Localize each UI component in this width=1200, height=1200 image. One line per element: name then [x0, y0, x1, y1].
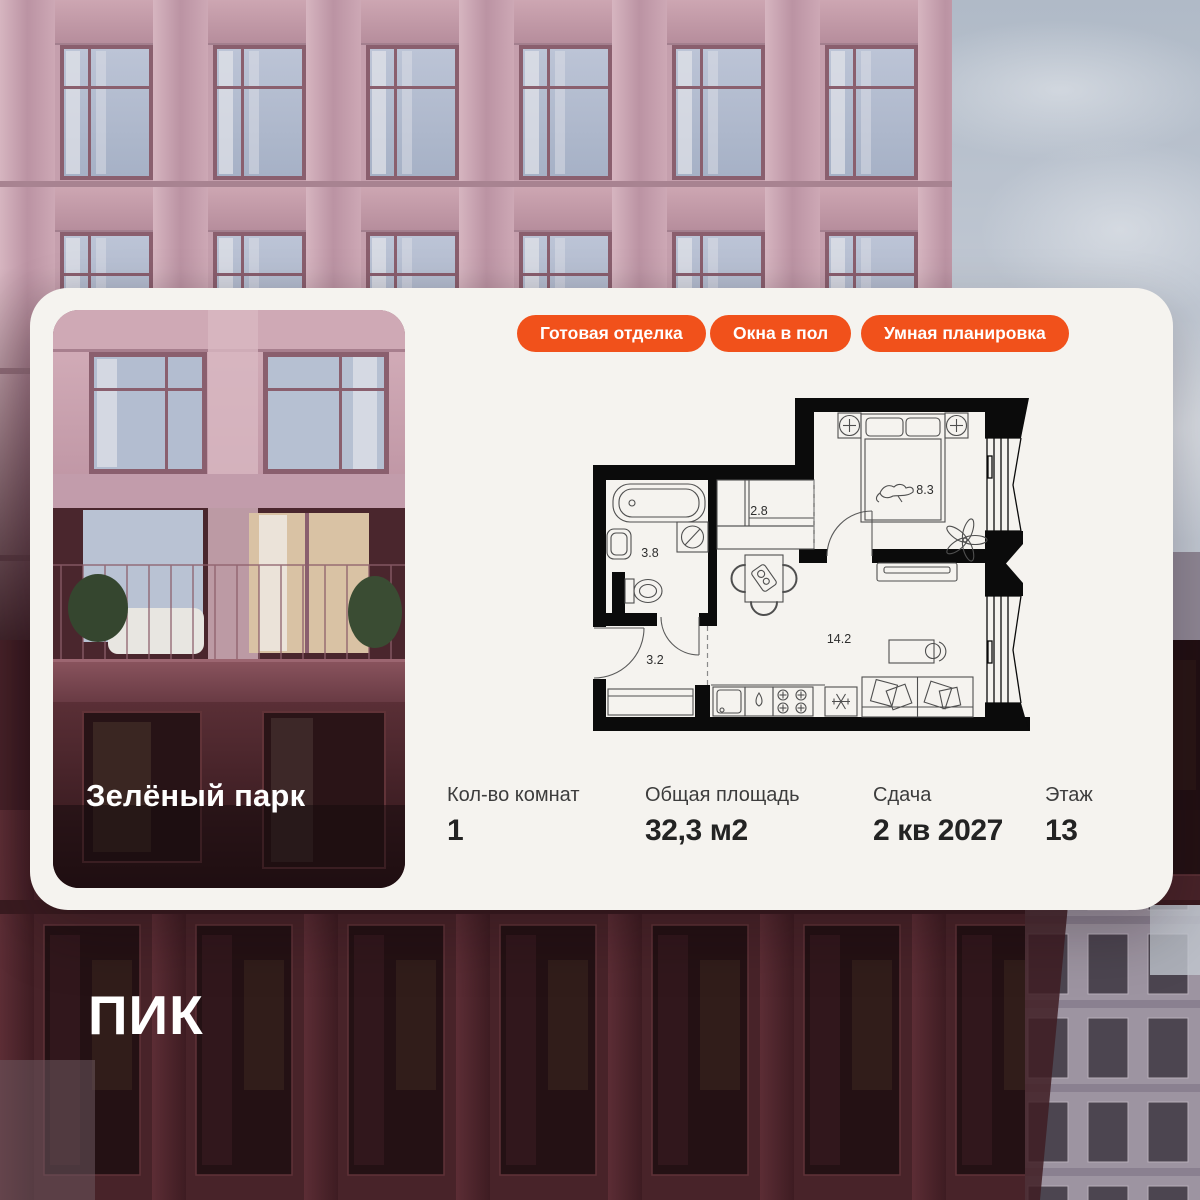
stat-delivery: Сдача 2 кв 2027: [873, 784, 1003, 848]
stat-rooms-value: 1: [447, 814, 579, 848]
badge-finish[interactable]: Готовая отделка: [517, 315, 706, 352]
tv-console-icon: [877, 563, 957, 581]
pik-logo: ПИК: [88, 983, 204, 1047]
stat-area-label: Общая площадь: [645, 784, 800, 807]
room-area-bedroom: 8.3: [916, 483, 933, 497]
plan-walls: [593, 398, 1030, 731]
cat-icon: [876, 484, 913, 502]
fridge-snowflake-icon: [832, 694, 850, 709]
stat-delivery-label: Сдача: [873, 784, 1003, 807]
stat-rooms-label: Кол-во комнат: [447, 784, 579, 807]
dining-table-icon: [732, 555, 797, 615]
balcony-plant: [68, 574, 128, 642]
stat-floor-label: Этаж: [1045, 784, 1093, 807]
listing-card[interactable]: Зелёный парк Готовая отделка Окна в пол …: [30, 288, 1173, 910]
stat-delivery-value: 2 кв 2027: [873, 814, 1003, 848]
badge-windows[interactable]: Окна в пол: [710, 315, 851, 352]
sink-icon: [607, 529, 631, 559]
stat-rooms: Кол-во комнат 1: [447, 784, 579, 848]
project-name: Зелёный парк: [86, 778, 305, 814]
room-area-living: 14.2: [827, 632, 851, 646]
stat-floor: Этаж 13: [1045, 784, 1093, 848]
stat-area: Общая площадь 32,3 м2: [645, 784, 800, 848]
badge-layout[interactable]: Умная планировка: [861, 315, 1069, 352]
bathtub-icon: [613, 484, 705, 522]
doors: [594, 511, 872, 678]
hall-cabinet-icon: [608, 689, 693, 715]
floor-plan: 3.8 2.8 8.3 3.2 14.2: [593, 398, 1030, 731]
stat-area-value: 32,3 м2: [645, 814, 800, 848]
desk-icon: [889, 640, 946, 663]
sofa-icon: [862, 677, 973, 717]
room-area-hallway: 3.2: [646, 653, 663, 667]
stat-floor-value: 13: [1045, 814, 1093, 848]
project-photo: Зелёный парк: [53, 310, 405, 888]
room-area-bathroom: 3.8: [641, 546, 658, 560]
room-area-wardrobe: 2.8: [750, 504, 767, 518]
neighbor-building: [1025, 905, 1200, 1200]
washer-icon: [677, 522, 708, 552]
toilet-icon: [625, 579, 662, 603]
bed-icon: [838, 413, 968, 522]
kitchen-icons: [711, 685, 857, 716]
